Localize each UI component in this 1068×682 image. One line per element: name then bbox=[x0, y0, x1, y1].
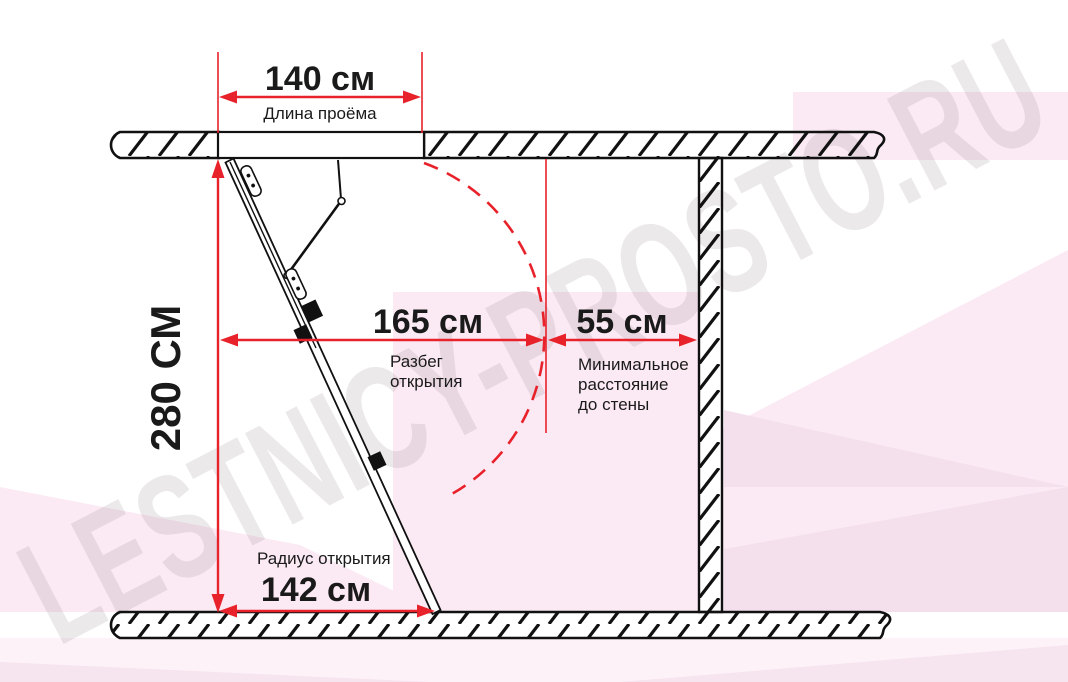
wall-distance-label-line2: расстояние bbox=[578, 375, 689, 395]
dim-value-opening-span: 165 см bbox=[348, 303, 508, 342]
floor-slab bbox=[111, 612, 890, 638]
strut-elbow-joint bbox=[338, 198, 345, 205]
wall-distance-label-line1: Минимальное bbox=[578, 355, 689, 375]
dim-value-opening-radius: 142 см bbox=[236, 571, 396, 610]
wall bbox=[699, 158, 722, 612]
dim-label-wall-distance: Минимальное расстояние до стены bbox=[578, 355, 689, 415]
opening-span-label-line2: открытия bbox=[390, 372, 462, 392]
dim-value-room-height-text: 280 СМ bbox=[142, 305, 190, 452]
ceiling-left-slab bbox=[111, 132, 219, 158]
dim-label-opening-radius: Радиус открытия bbox=[257, 549, 391, 569]
diagram-canvas: LESTNICY-PROSTO.RU bbox=[0, 0, 1068, 682]
hatch-opening-box bbox=[218, 132, 424, 158]
dim-value-wall-distance: 55 см bbox=[556, 303, 688, 342]
ceiling-right-slab bbox=[424, 132, 884, 158]
arrow-up-280 bbox=[212, 159, 225, 178]
dim-label-opening-span: Разбег открытия bbox=[390, 352, 462, 392]
dim-label-opening-length: Длина проёма bbox=[215, 104, 425, 124]
wall-distance-label-line3: до стены bbox=[578, 395, 689, 415]
strut-vertical-arm bbox=[338, 160, 341, 199]
dim-value-opening-length: 140 см bbox=[215, 60, 425, 99]
arrow-right-165 bbox=[526, 334, 544, 347]
ceiling bbox=[111, 132, 884, 158]
opening-span-label-line1: Разбег bbox=[390, 352, 462, 372]
arrow-left-165 bbox=[220, 334, 238, 347]
strut-diagonal-arm bbox=[287, 201, 341, 275]
